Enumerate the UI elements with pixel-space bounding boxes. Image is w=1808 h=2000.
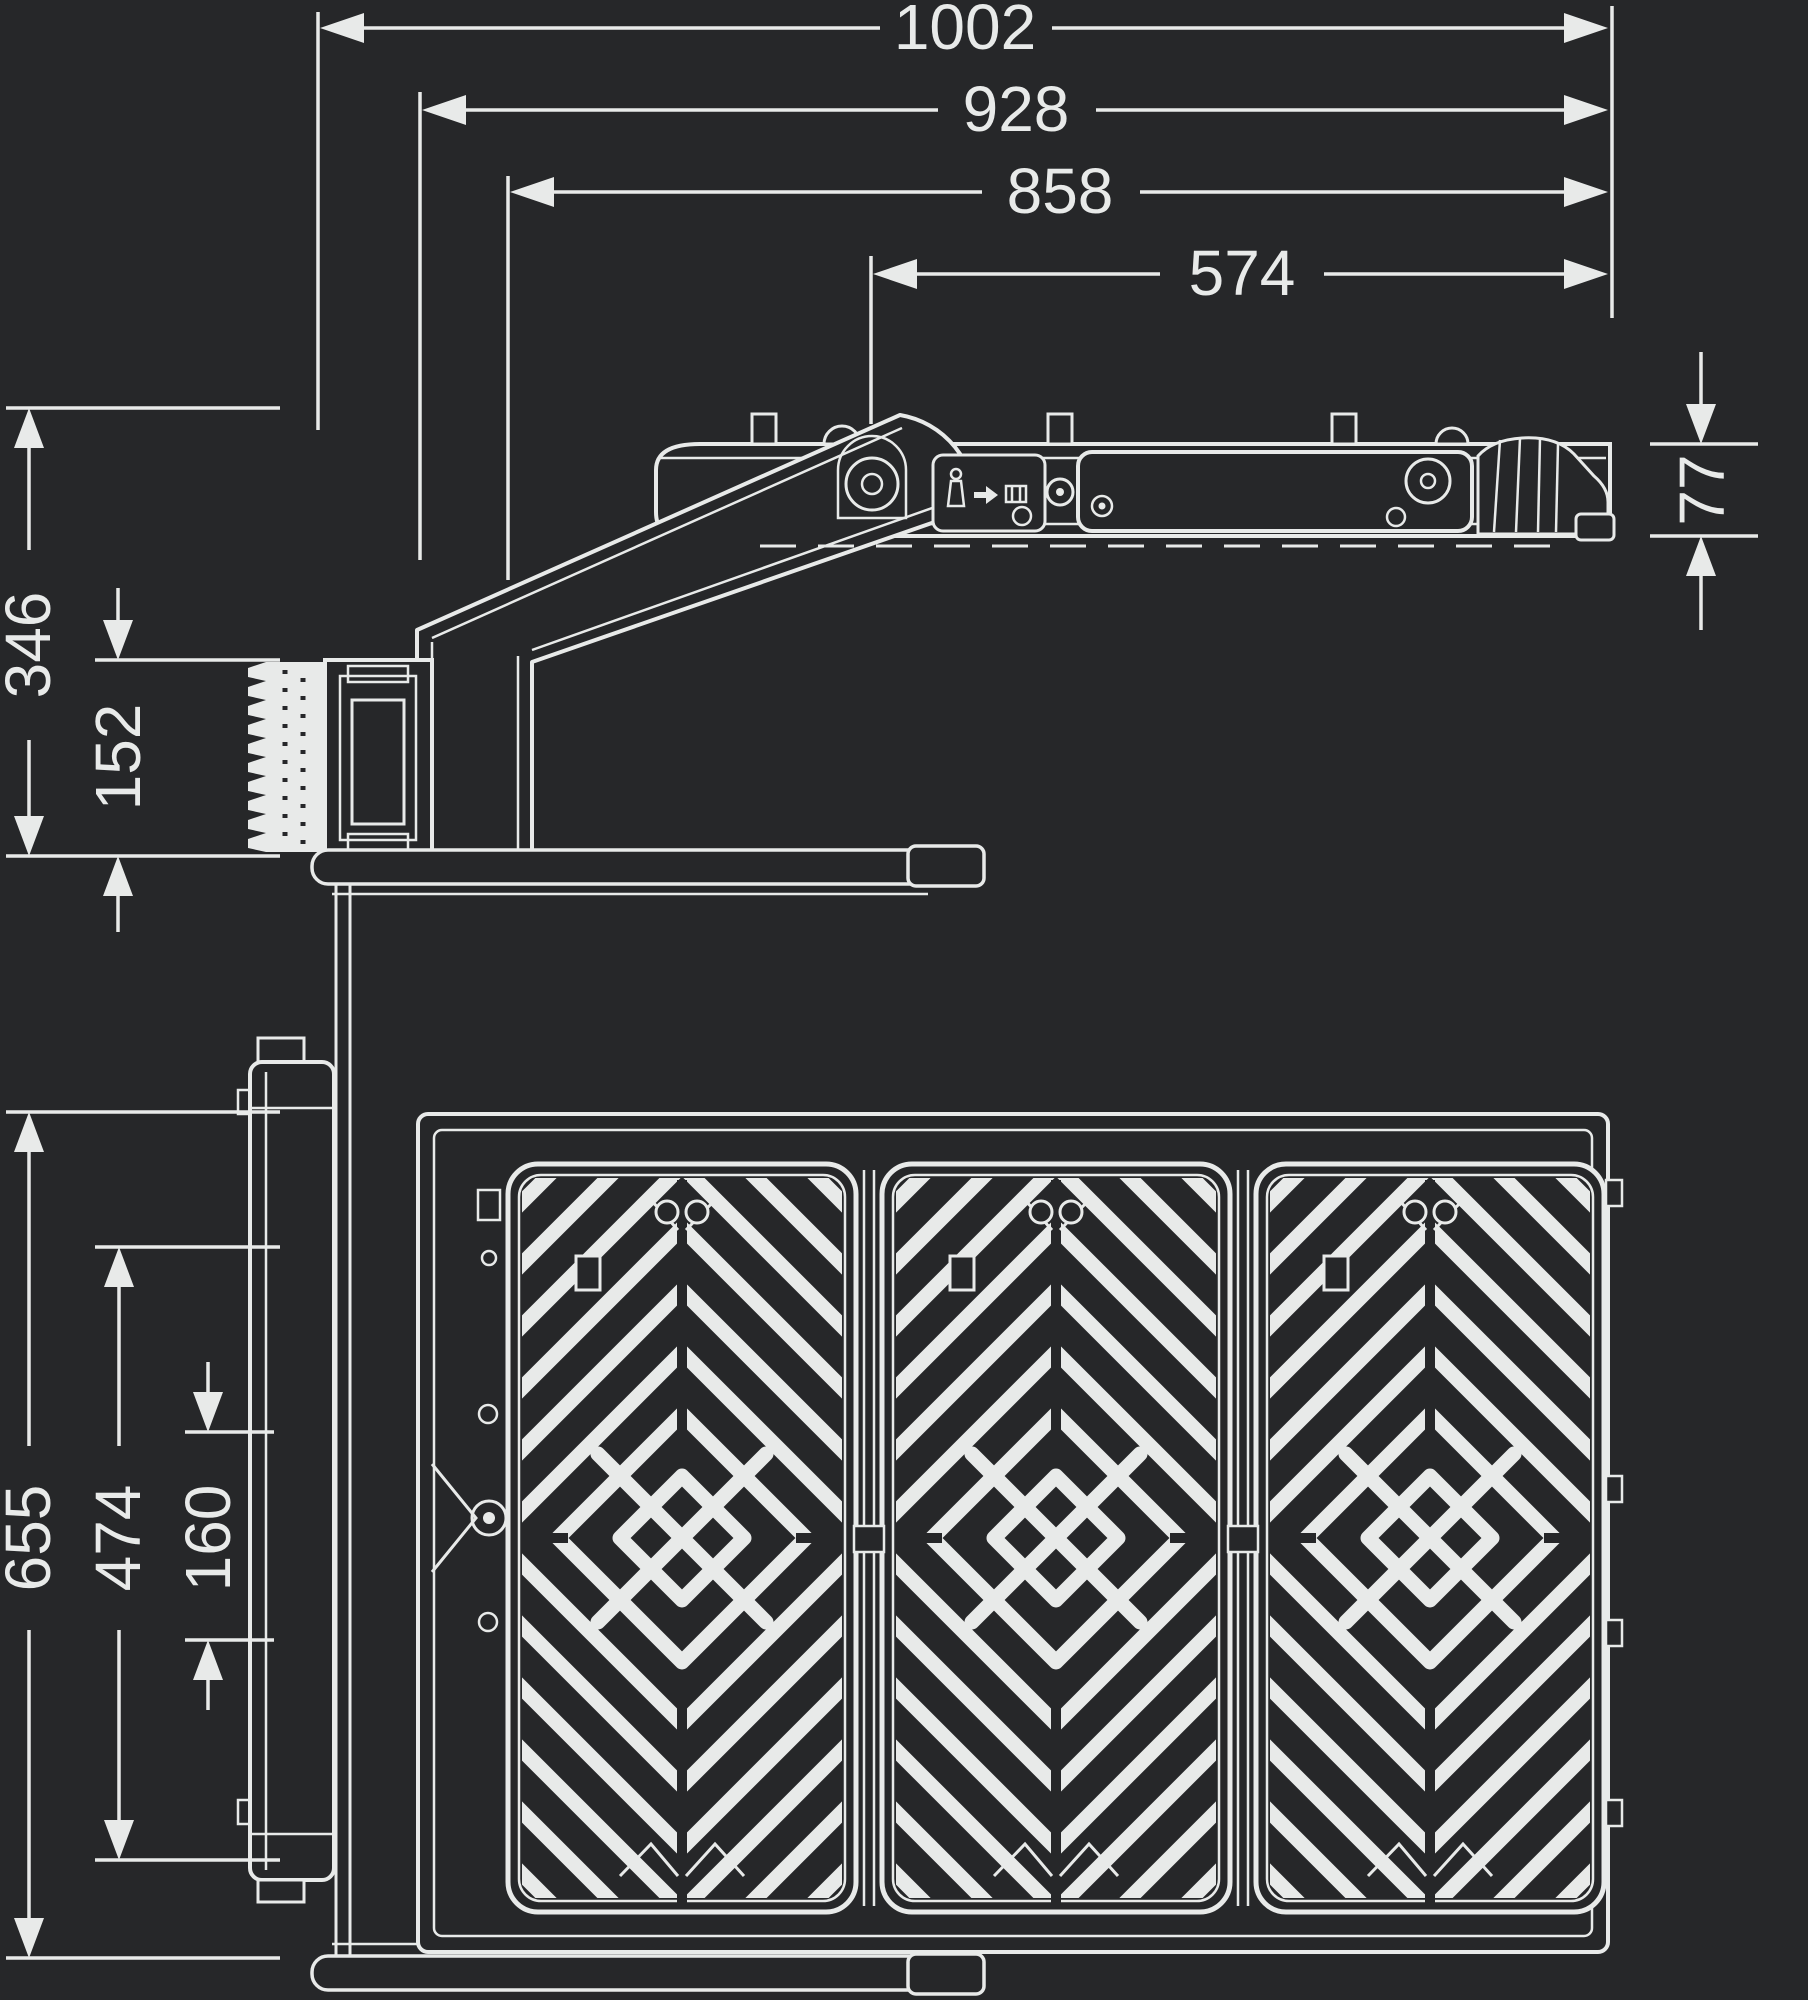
bracket-crossbar-top <box>312 846 984 894</box>
connector-box <box>248 660 432 856</box>
dim-label-1002: 1002 <box>894 0 1036 63</box>
dim-label-152: 152 <box>82 704 154 811</box>
end-foot <box>1576 514 1614 540</box>
side-left-dimensions: 346 152 <box>0 408 280 932</box>
technical-drawing: 1002 928 858 574 <box>0 0 1808 2000</box>
dim-346: 346 <box>0 408 64 856</box>
dim-label-474: 474 <box>82 1485 154 1592</box>
frame-tab <box>1606 1620 1622 1646</box>
frame-tab <box>1606 1180 1622 1206</box>
side-plate <box>1078 452 1472 531</box>
dim-label-858: 858 <box>1007 155 1114 227</box>
dim-label-160: 160 <box>172 1485 244 1592</box>
dim-474: 474 <box>82 1247 154 1860</box>
mount-tab <box>1048 414 1072 444</box>
frame-tab <box>1606 1476 1622 1502</box>
dim-label-346: 346 <box>0 592 64 699</box>
side-view <box>248 414 1614 856</box>
dim-label-655: 655 <box>0 1485 64 1592</box>
dome-bump <box>1436 428 1468 444</box>
bottom-left-dimensions: 655 474 160 <box>0 1112 280 1958</box>
dim-858: 858 <box>510 155 1608 227</box>
bottom-view <box>124 846 1808 2000</box>
dim-574: 574 <box>873 237 1608 309</box>
dim-160: 160 <box>172 1362 244 1710</box>
mount-tab <box>752 414 776 444</box>
label-plate <box>933 455 1045 531</box>
frame-tab <box>1606 1800 1622 1826</box>
dim-928: 928 <box>422 73 1608 145</box>
dim-label-928: 928 <box>963 73 1070 145</box>
pivot-bolt <box>846 458 898 510</box>
dim-77: 77 <box>1650 352 1758 630</box>
dim-1002: 1002 <box>320 0 1608 63</box>
dim-label-77: 77 <box>1666 454 1738 525</box>
driver-box <box>238 1038 334 1902</box>
mount-tab <box>1332 414 1356 444</box>
dim-152: 152 <box>82 588 154 932</box>
dim-655: 655 <box>0 1112 64 1958</box>
dim-label-574: 574 <box>1189 237 1296 309</box>
